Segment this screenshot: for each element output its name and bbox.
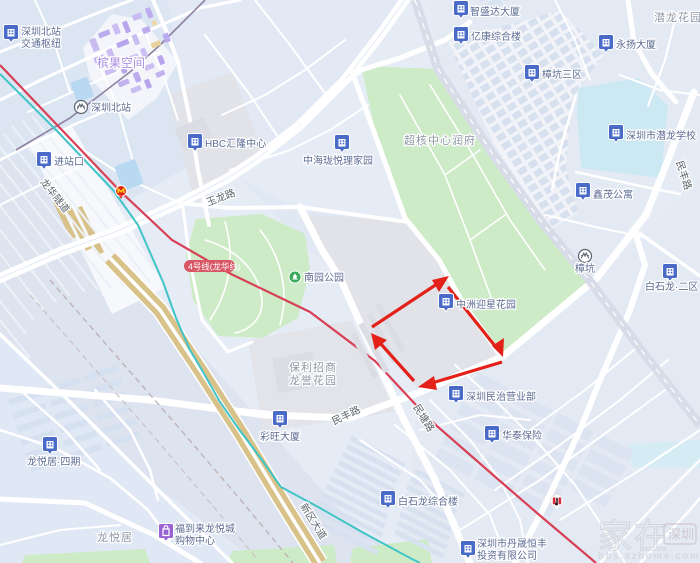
svg-text:鑫茂公寓: 鑫茂公寓 xyxy=(593,188,633,201)
svg-text:智盛达大厦: 智盛达大厦 xyxy=(470,5,520,18)
svg-text:深圳市潜龙学校: 深圳市潜龙学校 xyxy=(626,129,696,142)
svg-text:龙悦居·四期: 龙悦居·四期 xyxy=(27,455,80,468)
svg-text:深圳: 深圳 xyxy=(668,527,694,542)
svg-text:华泰保险: 华泰保险 xyxy=(502,429,542,442)
svg-text:龙誉花园: 龙誉花园 xyxy=(289,373,337,387)
svg-text:樟坑三区: 樟坑三区 xyxy=(542,68,582,81)
svg-text:投资有限公司: 投资有限公司 xyxy=(477,549,537,562)
svg-text:bbs.szhome.com: bbs.szhome.com xyxy=(598,551,700,562)
svg-text:槟果空间: 槟果空间 xyxy=(97,55,145,70)
svg-text:白石龙·二区: 白石龙·二区 xyxy=(645,280,698,293)
svg-text:交通枢纽: 交通枢纽 xyxy=(21,37,61,50)
svg-text:保利招商: 保利招商 xyxy=(289,360,337,374)
svg-text:HBC汇隆中心: HBC汇隆中心 xyxy=(205,137,266,150)
svg-text:樟坑: 樟坑 xyxy=(575,262,595,275)
svg-text:永扬大厦: 永扬大厦 xyxy=(616,38,656,51)
svg-text:深圳北站: 深圳北站 xyxy=(91,101,131,114)
svg-text:深圳北站: 深圳北站 xyxy=(21,25,61,38)
svg-text:进站口: 进站口 xyxy=(54,155,84,168)
svg-text:中洲迎星花园: 中洲迎星花园 xyxy=(456,298,516,311)
svg-text:亿康综合楼: 亿康综合楼 xyxy=(471,30,521,43)
svg-text:购物中心: 购物中心 xyxy=(175,534,215,547)
svg-text:南园公园: 南园公园 xyxy=(304,271,344,284)
svg-text:4号线(龙华线): 4号线(龙华线) xyxy=(188,262,241,272)
svg-text:彩旺大厦: 彩旺大厦 xyxy=(260,430,300,443)
svg-text:中海珑悦理家园: 中海珑悦理家园 xyxy=(303,154,373,167)
svg-text:白石龙综合楼: 白石龙综合楼 xyxy=(398,495,458,508)
svg-text:深圳市丹晟恒丰: 深圳市丹晟恒丰 xyxy=(477,537,547,550)
svg-text:龙悦居: 龙悦居 xyxy=(97,530,133,544)
svg-text:深圳民治营业部: 深圳民治营业部 xyxy=(466,390,536,403)
svg-text:超核中心润府: 超核中心润府 xyxy=(404,133,476,147)
svg-text:福到来龙悦城: 福到来龙悦城 xyxy=(175,522,235,535)
svg-text:潜龙花园: 潜龙花园 xyxy=(654,10,700,24)
